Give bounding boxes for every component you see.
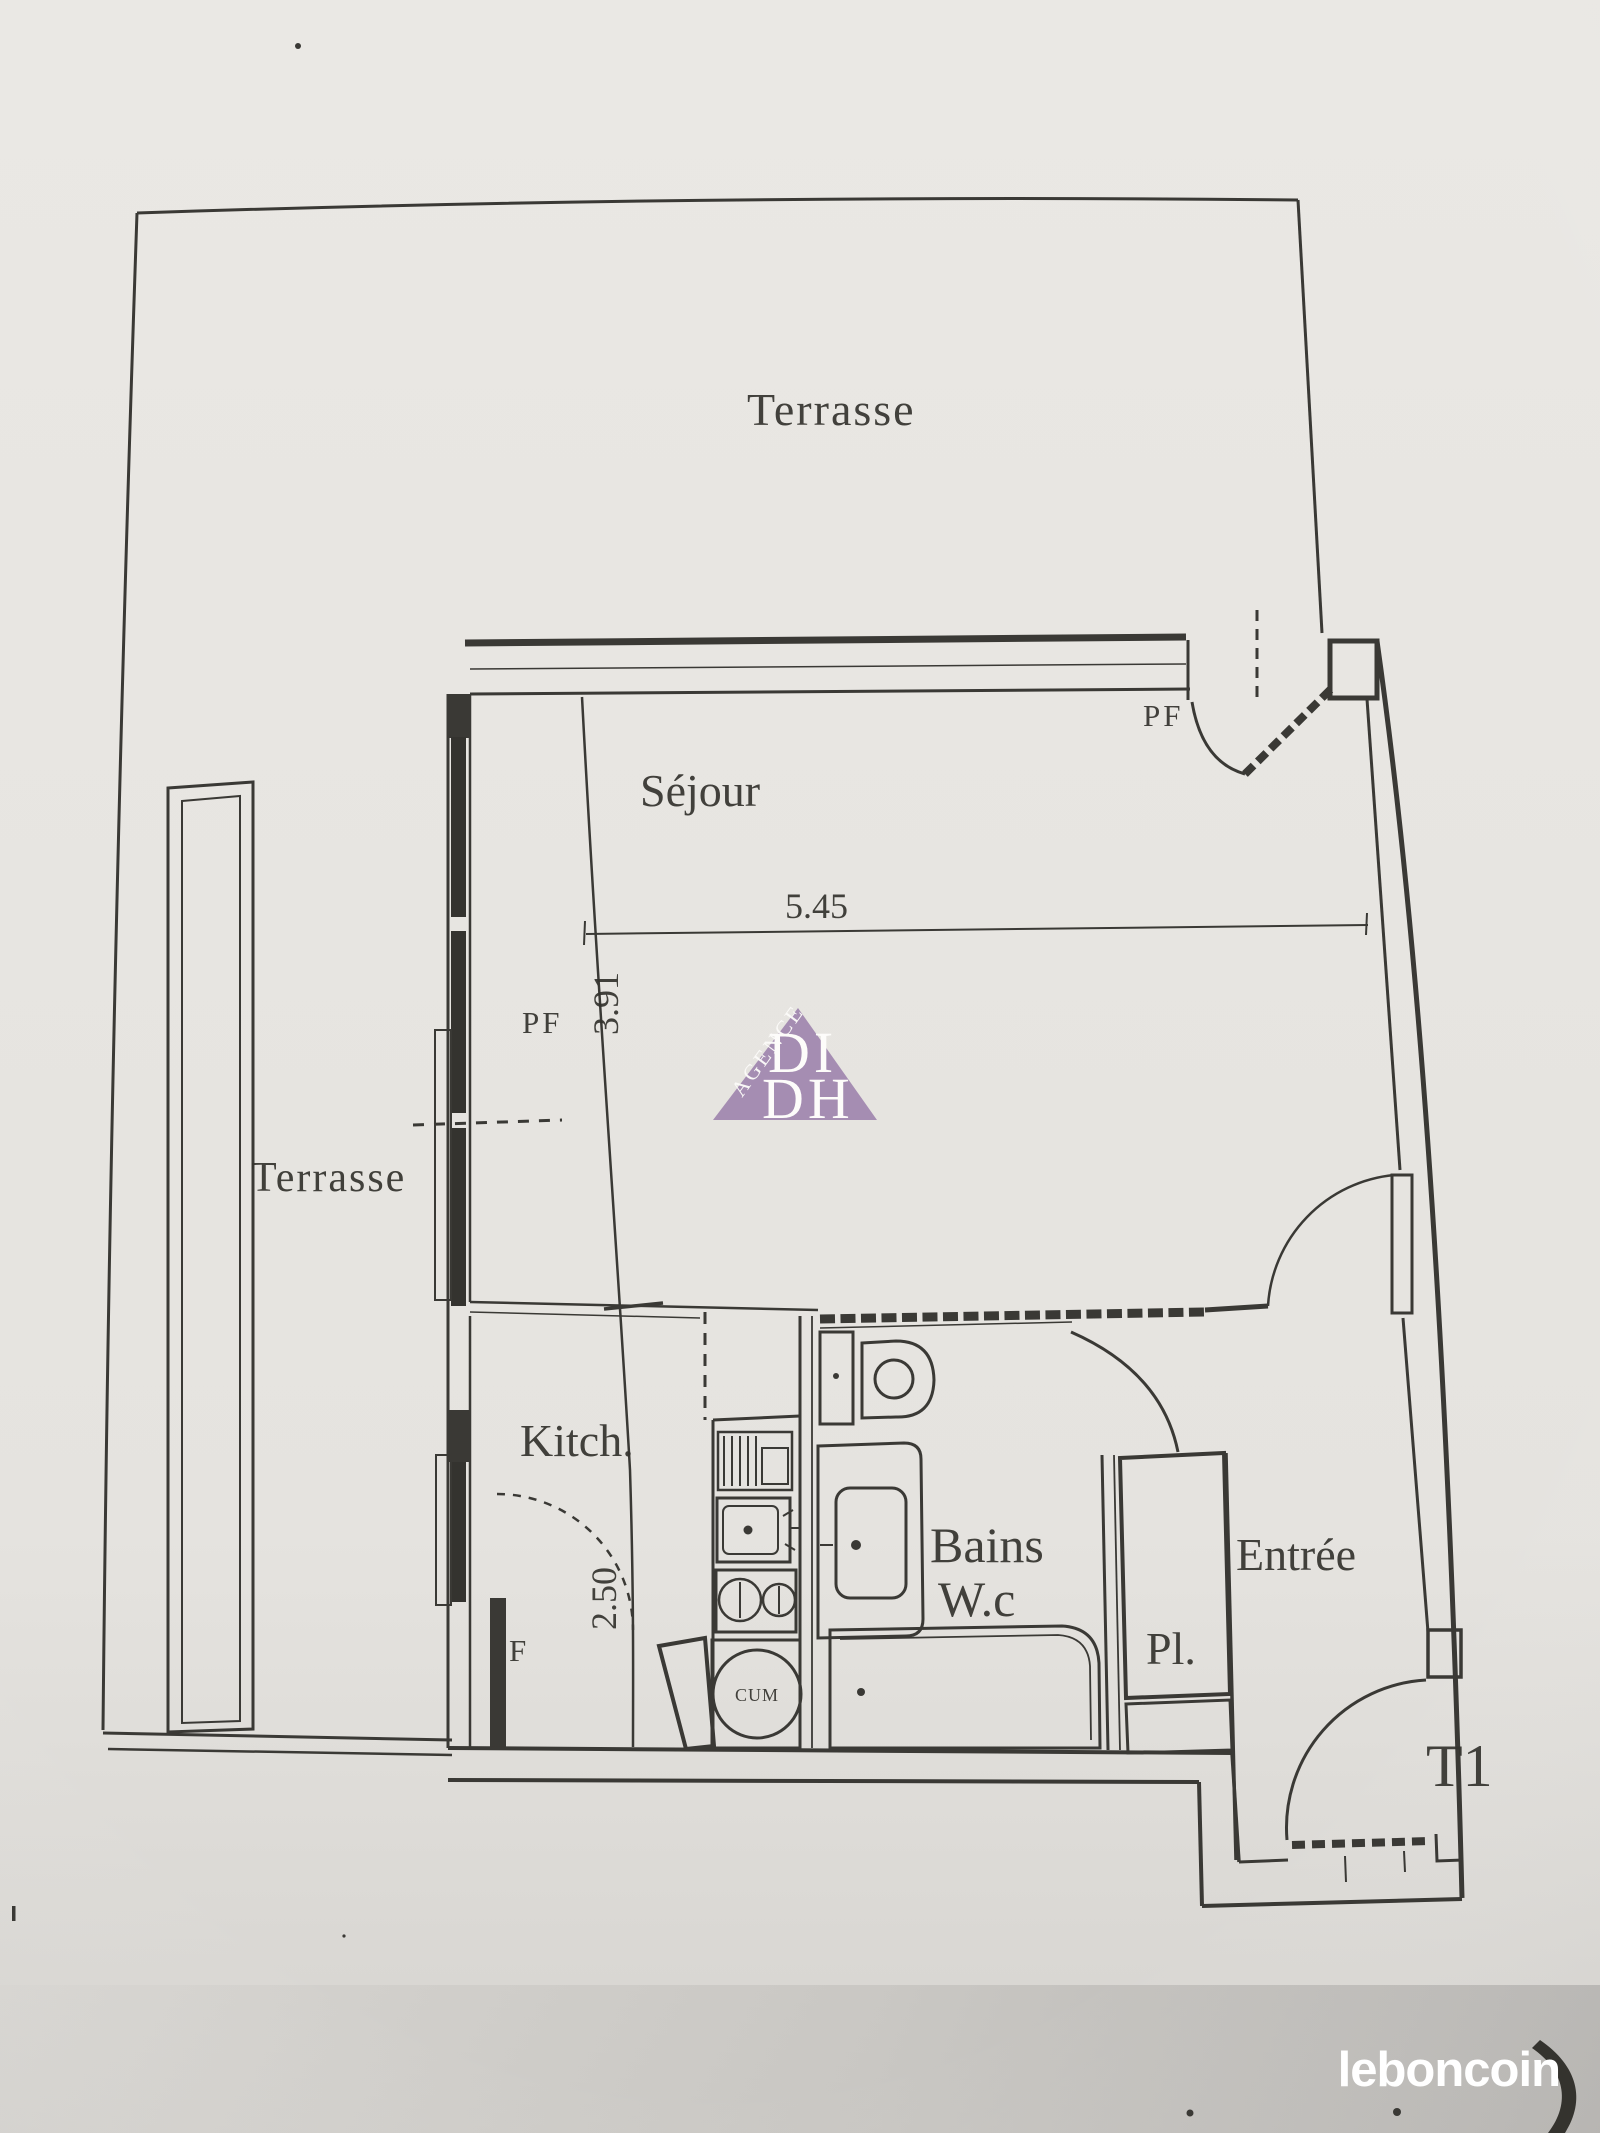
label-kitchen: Kitch.	[520, 1415, 634, 1466]
leboncoin-logo: leboncoin	[1338, 2043, 1560, 2097]
label-entree: Entrée	[1236, 1529, 1356, 1580]
label-wc: W.c	[938, 1571, 1015, 1627]
label-terrasse-left: Terrasse	[251, 1155, 406, 1201]
label-bains: Bains	[930, 1517, 1044, 1573]
label-type-t1: T1	[1426, 1733, 1493, 1799]
label-window-f: F	[509, 1633, 526, 1668]
label-sejour: Séjour	[640, 765, 760, 816]
label-terrasse-top: Terrasse	[747, 384, 916, 435]
label-cum: CUM	[735, 1685, 779, 1705]
dim-sejour-width: 5.45	[785, 886, 848, 926]
label-placard: Pl.	[1146, 1623, 1196, 1674]
label-pf-left: PF	[522, 1005, 562, 1040]
dim-kitchen-depth: 2.50	[584, 1567, 624, 1630]
floorplan-photo: Terrasse Terrasse Séjour Kitch. Bains W.…	[0, 0, 1600, 2133]
floorplan-drawing: Terrasse Terrasse Séjour Kitch. Bains W.…	[0, 0, 1600, 2133]
watermark-dh: DH	[762, 1066, 854, 1131]
dim-sejour-depth: 3.91	[586, 972, 626, 1035]
label-pf-top: PF	[1143, 698, 1183, 733]
